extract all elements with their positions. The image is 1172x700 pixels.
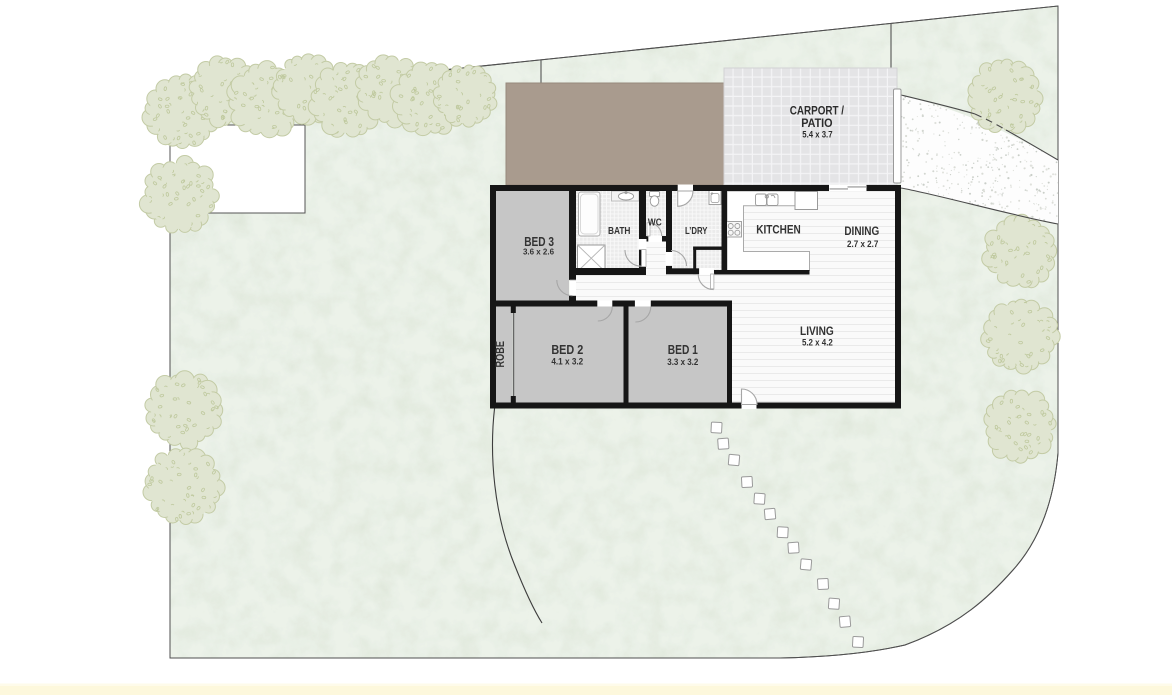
svg-text:5.4 x 3.7: 5.4 x 3.7 — [802, 130, 832, 140]
svg-text:5.2 x 4.2: 5.2 x 4.2 — [802, 338, 833, 348]
svg-text:KITCHEN: KITCHEN — [756, 223, 801, 236]
svg-text:BED 2: BED 2 — [551, 343, 583, 357]
svg-text:ROBE: ROBE — [493, 341, 507, 368]
svg-text:BATH: BATH — [608, 226, 631, 237]
svg-text:BED 1: BED 1 — [668, 343, 698, 357]
svg-text:3.3 x 3.2: 3.3 x 3.2 — [667, 357, 698, 367]
svg-text:DINING: DINING — [844, 224, 879, 238]
svg-text:WC: WC — [648, 217, 662, 228]
svg-text:4.1 x 3.2: 4.1 x 3.2 — [551, 356, 583, 366]
svg-text:3.6 x 2.6: 3.6 x 2.6 — [523, 247, 554, 257]
svg-text:2.7 x 2.7: 2.7 x 2.7 — [847, 239, 878, 249]
svg-text:PATIO: PATIO — [801, 117, 832, 130]
svg-text:CARPORT /: CARPORT / — [790, 105, 845, 118]
svg-text:LIVING: LIVING — [800, 325, 834, 338]
svg-text:L’DRY: L’DRY — [685, 226, 708, 237]
